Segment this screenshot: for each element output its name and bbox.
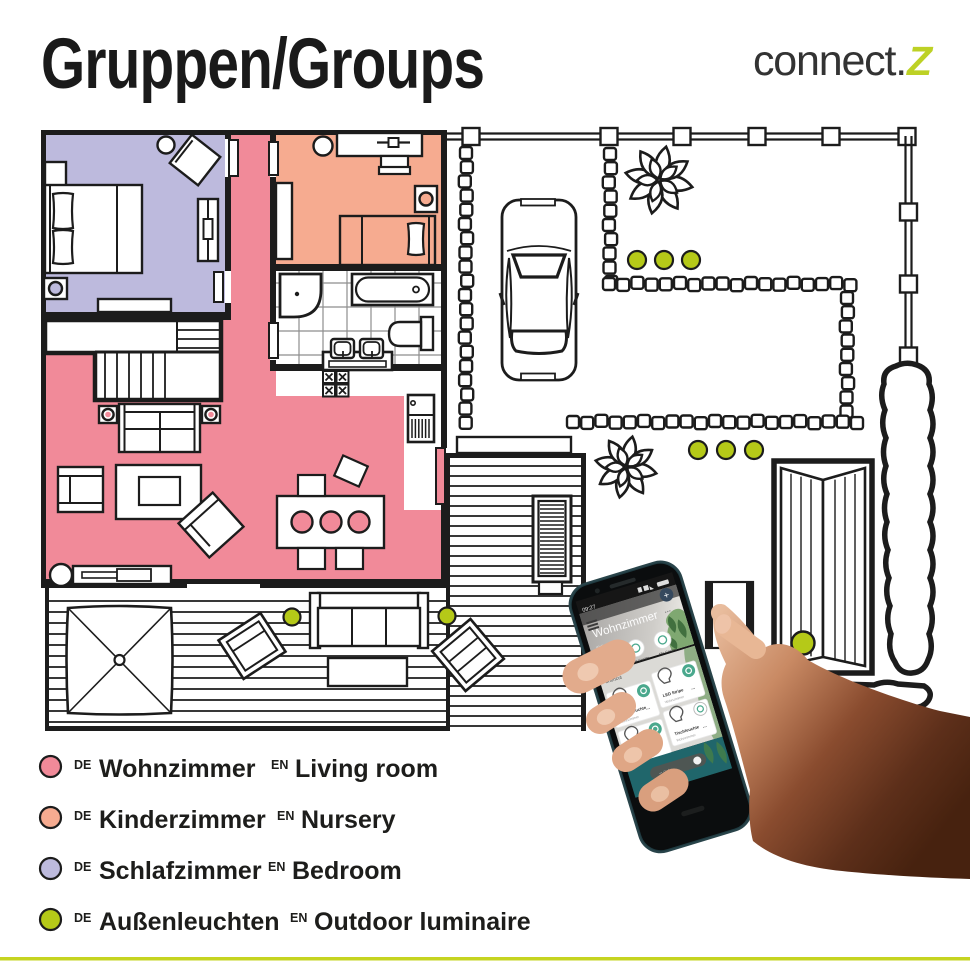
svg-text:Kinderzimmer: Kinderzimmer bbox=[99, 806, 266, 834]
svg-text:Nursery: Nursery bbox=[301, 806, 396, 834]
svg-text:EN: EN bbox=[290, 911, 307, 925]
svg-text:EN: EN bbox=[277, 809, 294, 823]
svg-text:Living room: Living room bbox=[295, 755, 438, 783]
svg-text:Schlafzimmer: Schlafzimmer bbox=[99, 857, 262, 885]
svg-text:EN: EN bbox=[271, 758, 288, 772]
svg-text:DE: DE bbox=[74, 809, 91, 823]
svg-text:Gruppen/Groups: Gruppen/Groups bbox=[41, 24, 484, 104]
svg-text:DE: DE bbox=[74, 911, 91, 925]
svg-text:Outdoor luminaire: Outdoor luminaire bbox=[314, 908, 531, 936]
svg-text:DE: DE bbox=[74, 758, 91, 772]
svg-text:EN: EN bbox=[268, 860, 285, 874]
svg-text:Bedroom: Bedroom bbox=[292, 857, 402, 885]
svg-text:Z: Z bbox=[906, 38, 934, 84]
svg-text:DE: DE bbox=[74, 860, 91, 874]
svg-text:Außenleuchten: Außenleuchten bbox=[99, 908, 280, 936]
svg-text:Wohnzimmer: Wohnzimmer bbox=[99, 755, 256, 783]
svg-text:connect.: connect. bbox=[753, 37, 906, 85]
